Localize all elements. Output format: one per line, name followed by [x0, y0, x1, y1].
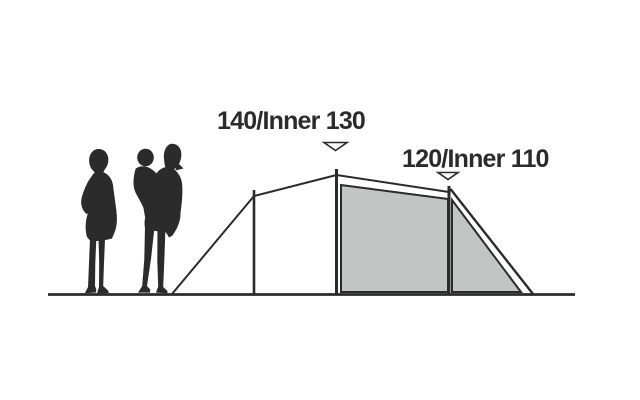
woman-head — [89, 149, 108, 175]
tent-height-diagram: 140/Inner 130 120/Inner 110 — [0, 0, 640, 400]
height-marker-triangle-icon — [438, 173, 458, 180]
woman-skirt — [86, 209, 117, 241]
peak-height-label: 140/Inner 130 — [217, 109, 365, 134]
woman-torso — [81, 172, 116, 214]
mother-front-leg — [138, 226, 155, 293]
rear-height-label: 120/Inner 110 — [402, 147, 549, 172]
woman-right-leg — [97, 239, 109, 293]
mother-child-torso — [134, 166, 183, 217]
tent-ridge-left — [254, 175, 337, 196]
inner-tent-main — [341, 185, 448, 292]
inner-tent-rear — [452, 200, 521, 292]
diagram-canvas — [0, 0, 640, 400]
adult-with-child-silhouette — [134, 144, 184, 293]
tent-front-guyline — [172, 196, 254, 294]
mother-back-leg — [156, 227, 168, 293]
tent-profile — [48, 169, 575, 295]
woman-left-leg — [85, 239, 97, 294]
child-head — [137, 149, 154, 167]
height-marker-triangle-icon — [324, 143, 347, 151]
adult-silhouette — [81, 149, 117, 293]
